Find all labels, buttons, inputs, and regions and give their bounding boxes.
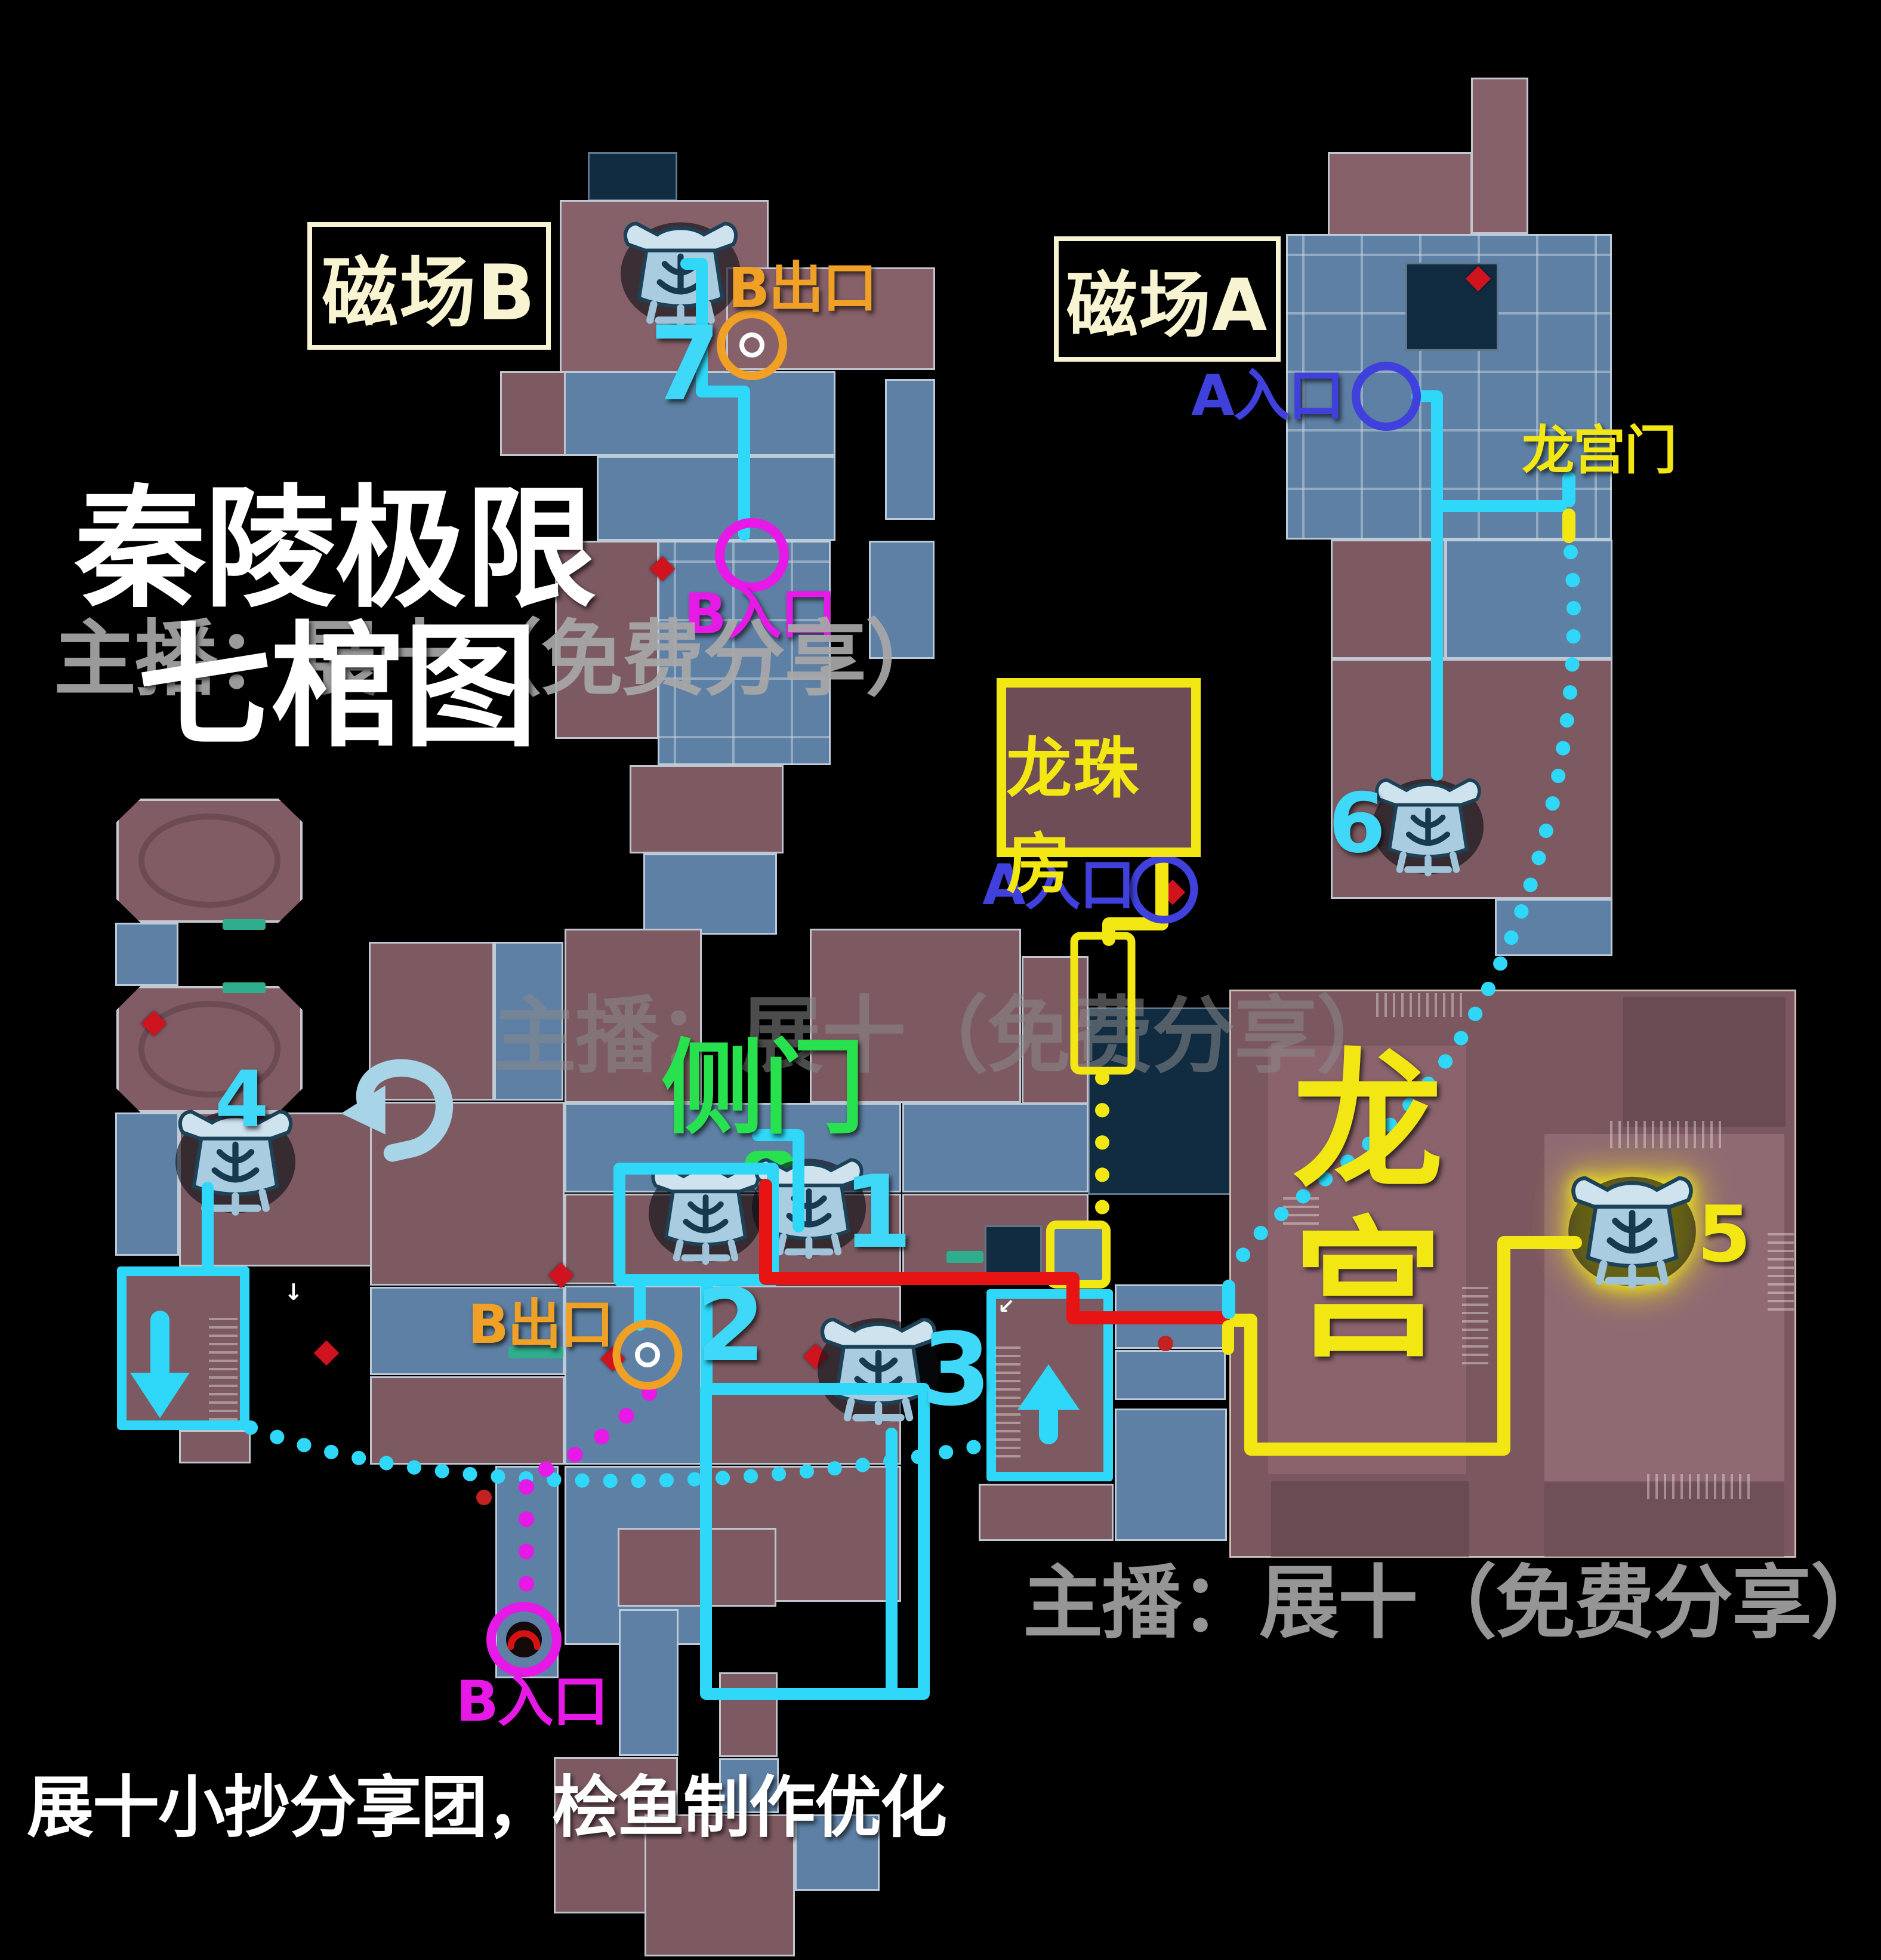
label-title-line1: 秦陵极限: [75, 482, 595, 616]
label-credit-bottom: 展十小抄分享团，桧鱼制作优化: [27, 1774, 946, 1842]
label-wm3: 主播：展十（免费分享）: [1023, 1563, 1881, 1644]
map-guide-image: 主播：展十（免费分享） B出口B入口A入口龙宫门A入口侧门B出口B入口龙宫764…: [0, 0, 1881, 1960]
label-title-line2: 七棺图: [137, 620, 536, 757]
titles-credits-layer: 主播：展十（免费分享）秦陵极限七棺图主播：展十（免费分享）展十小抄分享团，桧鱼制…: [0, 0, 1881, 1960]
